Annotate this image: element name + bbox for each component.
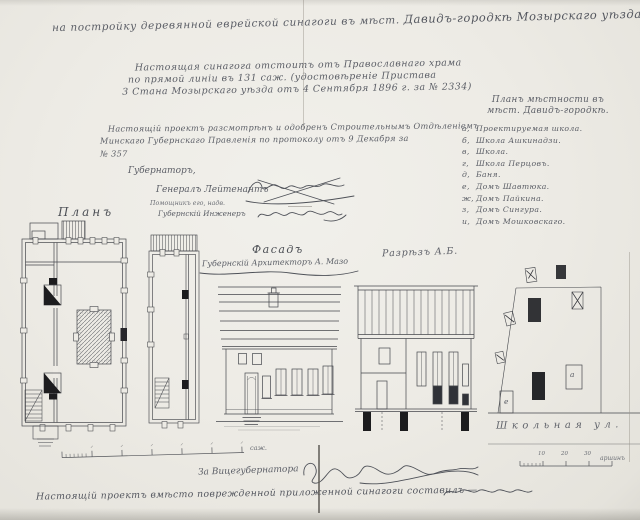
section-roof-truss bbox=[354, 286, 478, 339]
facade-drawing bbox=[216, 281, 343, 435]
siteplan-building-e-label: е bbox=[504, 397, 508, 406]
facade-architect-line: Губернскій Архитекторъ А. Мазо bbox=[202, 257, 348, 270]
facade-windows bbox=[239, 354, 335, 399]
legend-key: з, bbox=[462, 205, 476, 215]
section-foundation-posts bbox=[363, 412, 469, 431]
legend-label: Домъ Пайкина. bbox=[476, 194, 544, 203]
scanned-document-page: на постройку деревянной еврейской синаго… bbox=[0, 0, 640, 520]
plan-staircase bbox=[25, 390, 42, 421]
plan-bimah bbox=[74, 307, 115, 368]
section-hall bbox=[417, 339, 471, 410]
page-edge bbox=[629, 252, 630, 462]
governor-title: Губернаторъ, bbox=[128, 166, 196, 177]
legend-key: ж, bbox=[462, 194, 476, 204]
architect-flourish bbox=[200, 269, 360, 278]
title-part1: на постройку деревянной еврейской синаго… bbox=[52, 14, 404, 34]
legend-label: Домъ Шавтюка. bbox=[476, 182, 550, 191]
footer-note: Настоящій проектъ вмѣсто поврежденной пр… bbox=[36, 485, 478, 504]
facade-label: Фасадъ bbox=[252, 243, 304, 257]
engineer-signature bbox=[256, 208, 348, 223]
site-legend: Планъ мѣстности въ мѣст. Давидъ-городкѣ.… bbox=[462, 95, 634, 228]
author-signature bbox=[440, 483, 540, 503]
legend-label: Школа Ашкинадзи. bbox=[476, 136, 561, 145]
legend-label: Проектируемая школа. bbox=[476, 124, 582, 133]
legend-item: и,Домъ Мошковскаго. bbox=[462, 217, 634, 229]
governor-signature bbox=[242, 175, 360, 207]
site-scale-unit: аршинъ bbox=[600, 455, 625, 463]
siteplan-building-a-label: а bbox=[570, 370, 574, 379]
legend-item: з,Домъ Сингура. bbox=[462, 205, 634, 217]
plan-stove-icon bbox=[44, 373, 61, 400]
facade-door bbox=[243, 373, 262, 425]
title-part2: Давидъ-городкѣ Мозырскаго уѣзда. bbox=[403, 7, 640, 26]
plot-boundary bbox=[498, 287, 601, 413]
floor-plan-drawing bbox=[20, 218, 128, 452]
legend-title-line-1: Планъ мѣстности въ bbox=[462, 95, 634, 106]
plan-stove-icon bbox=[44, 278, 61, 305]
legend-label: Домъ Мошковскаго. bbox=[476, 217, 566, 226]
section-drawing bbox=[350, 278, 482, 448]
vice-governor-line: За Вицегубернатора bbox=[198, 464, 299, 479]
legend-key: а, bbox=[462, 124, 476, 134]
legend-label: Школа. bbox=[476, 147, 508, 156]
legend-item: г,Школа Перцовъ. bbox=[462, 159, 634, 171]
gallery-flue bbox=[182, 380, 189, 389]
section-left-rooms bbox=[361, 339, 406, 410]
legend-key: г, bbox=[462, 159, 476, 169]
ink-dash bbox=[288, 206, 312, 207]
legend-label: Домъ Сингура. bbox=[476, 205, 542, 214]
section-label: Разрѣзъ А.Б. bbox=[382, 246, 458, 261]
facade-ground bbox=[216, 422, 343, 431]
legend-item: е,Домъ Шавтюка. bbox=[462, 182, 634, 194]
section-floor bbox=[355, 409, 477, 412]
facade-wall bbox=[224, 349, 334, 414]
gallery-plan-drawing bbox=[146, 232, 206, 434]
legend-label: Школа Перцовъ. bbox=[476, 159, 550, 168]
legend-title-line-2: мѣст. Давидъ-городкѣ. bbox=[462, 106, 634, 117]
legend-key: и, bbox=[462, 217, 476, 227]
title-inscription: на постройку деревянной еврейской синаго… bbox=[52, 8, 597, 35]
plan-ark bbox=[121, 328, 128, 341]
legend-item: д,Баня. bbox=[462, 170, 634, 182]
engineer-note-2: Губернскій Инженеръ bbox=[158, 209, 246, 218]
gallery-staircase bbox=[155, 378, 169, 408]
plan-porch bbox=[33, 426, 58, 446]
gallery-flue bbox=[182, 290, 189, 299]
legend-item: ж,Домъ Пайкина. bbox=[462, 194, 634, 206]
approval-paragraph: Настоящій проектъ разсмотрѣнъ и одобренъ… bbox=[100, 119, 479, 159]
legend-item: в,Школа. bbox=[462, 147, 634, 159]
fold-crease bbox=[303, 0, 304, 130]
street-name-label: Школьная ул. bbox=[496, 419, 623, 433]
main-scale-unit: саж. bbox=[250, 444, 267, 452]
legend-key: в, bbox=[462, 147, 476, 157]
legend-item: б,Школа Ашкинадзи. bbox=[462, 136, 634, 148]
legend-label: Баня. bbox=[476, 170, 501, 179]
bottom-shadow bbox=[0, 508, 640, 520]
top-shadow bbox=[0, 0, 640, 6]
legend-key: б, bbox=[462, 136, 476, 146]
fold-mark bbox=[318, 445, 320, 513]
main-scale-bar bbox=[58, 438, 254, 465]
legend-key: е, bbox=[462, 182, 476, 192]
legend-key: д, bbox=[462, 170, 476, 180]
legend-item: а,Проектируемая школа. bbox=[462, 124, 634, 136]
certificate-paragraph: Настоящая синагога отстоитъ отъ Правосла… bbox=[120, 57, 472, 98]
facade-roof bbox=[218, 287, 341, 349]
engineer-note-1: Помощникъ его, надв. bbox=[150, 200, 225, 208]
